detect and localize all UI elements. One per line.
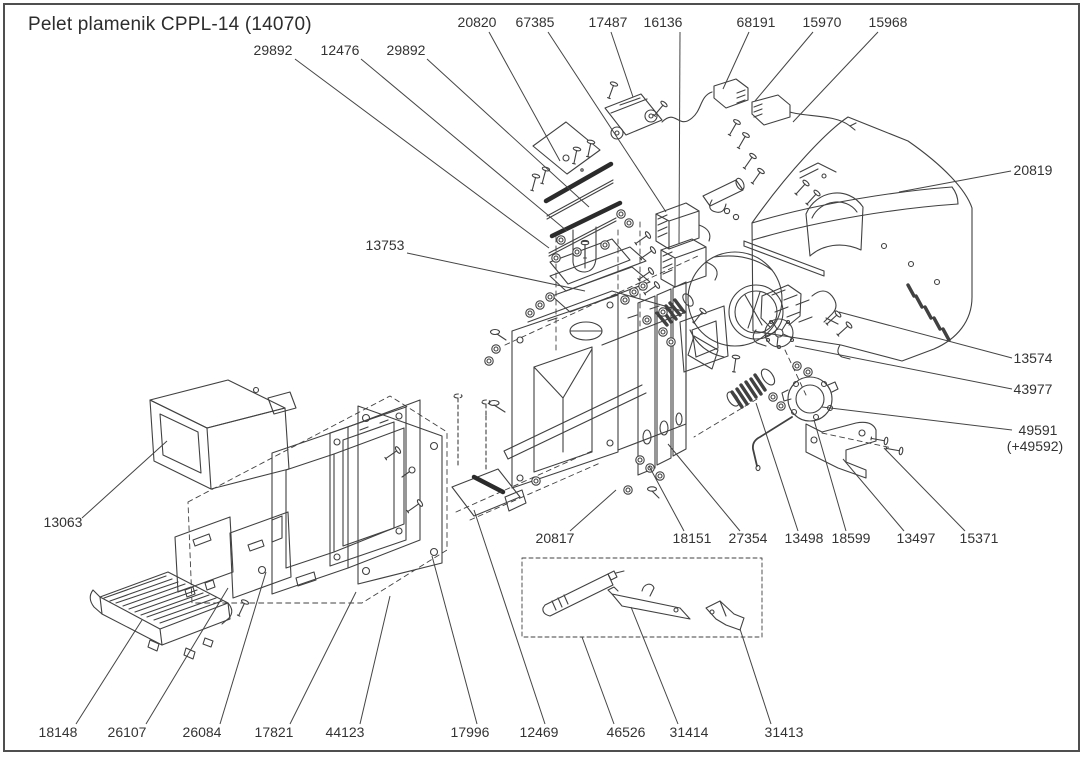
- leader-line: [489, 32, 560, 161]
- leader-line: [427, 59, 589, 207]
- diagram-page: Pelet plamenik CPPL-14 (14070): [0, 0, 1083, 757]
- part-label-15968: 15968: [793, 14, 908, 122]
- leader-line: [360, 596, 390, 724]
- part-label-44123: 44123: [326, 596, 390, 740]
- leader-line: [474, 510, 545, 724]
- part-label-18148: 18148: [39, 620, 142, 740]
- part-number: 18599: [832, 530, 871, 546]
- leader-line: [570, 490, 616, 531]
- part-drawing-feed-tube-assembly: [533, 122, 650, 350]
- part-label-49591: 49591(+49592): [822, 407, 1063, 454]
- leader-line: [82, 441, 167, 518]
- part-number: 26084: [183, 724, 222, 740]
- part-drawing-holder-bracket: [452, 451, 600, 520]
- leader-line: [795, 346, 1012, 389]
- part-number: 17821: [255, 724, 294, 740]
- part-number: 13753: [366, 237, 405, 253]
- leader-line: [76, 620, 142, 724]
- part-drawing-bent-rod: [753, 417, 792, 471]
- part-number: 13497: [897, 530, 936, 546]
- part-number: 20820: [458, 14, 497, 30]
- part-drawing-grate: [90, 572, 232, 659]
- part-number: 31413: [765, 724, 804, 740]
- part-number: 68191: [737, 14, 776, 30]
- part-number: 16136: [644, 14, 683, 30]
- part-number-note: (+49592): [1007, 438, 1063, 454]
- part-number: 26107: [108, 724, 147, 740]
- part-number: 13063: [44, 514, 83, 530]
- cable-wire: [662, 92, 712, 122]
- part-number: 20817: [536, 530, 575, 546]
- part-label-20817: 20817: [536, 490, 616, 546]
- part-number: 18151: [673, 530, 712, 546]
- part-drawing-gear-motor: [605, 92, 712, 139]
- part-number: 13498: [785, 530, 824, 546]
- part-number: 46526: [607, 724, 646, 740]
- part-label-29892: 29892: [387, 42, 589, 207]
- part-drawing-flame-duct: [150, 380, 296, 489]
- leader-line: [755, 32, 813, 101]
- part-drawing-flange-ring: [782, 377, 838, 421]
- leader-line: [611, 32, 633, 97]
- leader-line: [793, 32, 878, 122]
- leader-line: [631, 607, 678, 724]
- leader-line: [756, 403, 798, 531]
- leader-line: [899, 171, 1011, 192]
- leader-line: [843, 459, 904, 531]
- leader-line: [723, 32, 749, 89]
- part-number: 15371: [960, 530, 999, 546]
- part-drawing-mounting-bracket: [806, 422, 892, 478]
- part-label-67385: 67385: [516, 14, 666, 212]
- part-number: 12476: [321, 42, 360, 58]
- part-number: 44123: [326, 724, 365, 740]
- part-drawing-igniter-kit: [522, 558, 762, 637]
- leader-line: [295, 59, 549, 248]
- part-label-46526: 46526: [582, 637, 646, 740]
- leader-line: [649, 466, 684, 531]
- diagram-title: Pelet plamenik CPPL-14 (14070): [28, 14, 312, 35]
- part-number: 31414: [670, 724, 709, 740]
- part-number: 29892: [254, 42, 293, 58]
- part-drawing-wire-clamp: [800, 163, 838, 324]
- part-label-12476: 12476: [321, 42, 567, 231]
- part-label-17996: 17996: [432, 556, 490, 740]
- leader-line: [679, 32, 680, 244]
- part-number: 29892: [387, 42, 426, 58]
- page-border: [4, 4, 1079, 751]
- part-label-29892: 29892: [254, 42, 549, 248]
- leader-line: [884, 448, 965, 531]
- part-label-20819: 20819: [899, 162, 1053, 192]
- part-label-13063: 13063: [44, 441, 167, 530]
- leader-line: [814, 420, 846, 531]
- part-label-16136: 16136: [644, 14, 683, 244]
- part-label-18599: 18599: [814, 420, 871, 546]
- leader-line: [740, 629, 771, 724]
- leader-line: [582, 637, 614, 724]
- part-number: 67385: [516, 14, 555, 30]
- part-label-13574: 13574: [839, 312, 1053, 366]
- part-number: 49591: [1019, 422, 1058, 438]
- leader-line: [361, 59, 567, 231]
- part-label-20820: 20820: [458, 14, 560, 161]
- part-drawing-sensor-cylinder: [703, 177, 746, 220]
- part-drawing-blower-fan: [680, 252, 806, 395]
- part-number: 20819: [1014, 162, 1053, 178]
- leader-line: [822, 407, 1012, 430]
- part-label-13498: 13498: [756, 403, 824, 546]
- part-labels-layer: 2082067385174871613668191159701596829892…: [39, 14, 1064, 740]
- part-number: 18148: [39, 724, 78, 740]
- part-label-31414: 31414: [631, 607, 709, 740]
- part-label-17821: 17821: [255, 592, 356, 740]
- part-number: 17487: [589, 14, 628, 30]
- exploded-parts-diagram: Pelet plamenik CPPL-14 (14070): [0, 0, 1083, 757]
- part-label-31413: 31413: [740, 629, 804, 740]
- part-number: 15970: [803, 14, 842, 30]
- part-number: 17996: [451, 724, 490, 740]
- part-drawing-cover: [744, 117, 972, 361]
- part-number: 43977: [1014, 381, 1053, 397]
- part-label-68191: 68191: [723, 14, 776, 89]
- leader-line: [432, 556, 477, 724]
- part-number: 15968: [869, 14, 908, 30]
- part-number: 13574: [1014, 350, 1053, 366]
- part-drawing-door-group: [175, 396, 447, 603]
- part-number: 12469: [520, 724, 559, 740]
- leader-line: [668, 444, 740, 531]
- part-number: 27354: [729, 530, 768, 546]
- leader-line: [290, 592, 356, 724]
- part-label-26084: 26084: [183, 572, 266, 740]
